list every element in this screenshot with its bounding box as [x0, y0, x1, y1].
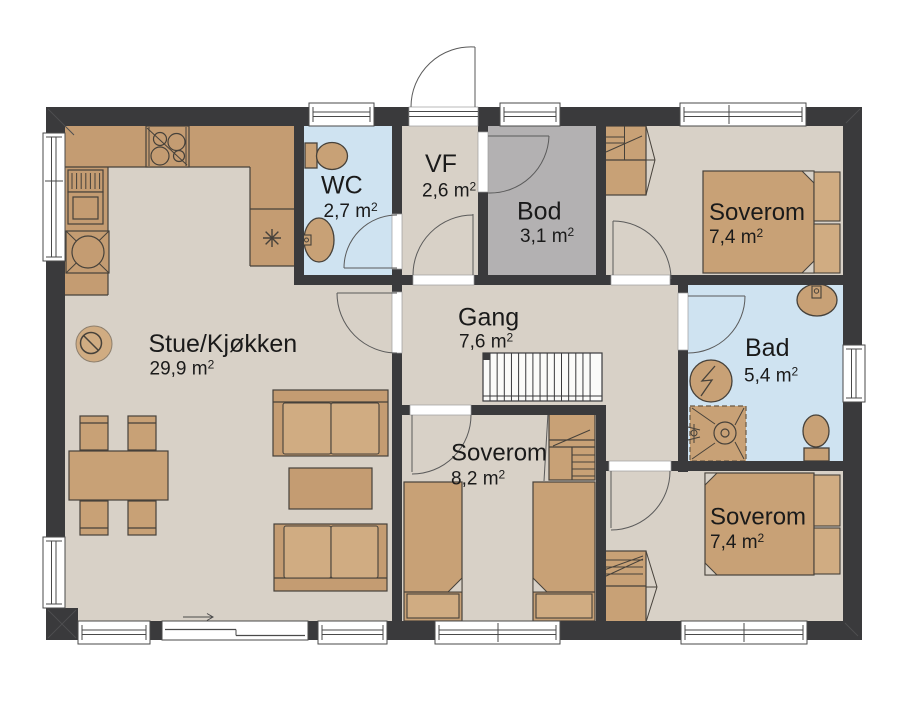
svg-text:Gang: Gang — [458, 304, 519, 332]
svg-text:WC: WC — [321, 172, 363, 200]
svg-text:7,4 m2: 7,4 m2 — [709, 226, 764, 248]
svg-text:Soverom: Soverom — [710, 504, 806, 531]
svg-text:Bad: Bad — [745, 334, 789, 362]
svg-text:2,6 m2: 2,6 m2 — [422, 180, 477, 202]
svg-text:VF: VF — [425, 150, 457, 178]
svg-text:2,7 m2: 2,7 m2 — [324, 200, 379, 222]
svg-text:29,9 m2: 29,9 m2 — [150, 358, 215, 380]
svg-text:Soverom: Soverom — [709, 199, 805, 226]
svg-text:5,4 m2: 5,4 m2 — [744, 365, 799, 387]
svg-text:Stue/Kjøkken: Stue/Kjøkken — [149, 330, 298, 358]
svg-text:Bod: Bod — [517, 198, 561, 226]
svg-text:7,4 m2: 7,4 m2 — [710, 531, 765, 553]
svg-text:Soverom: Soverom — [451, 440, 547, 467]
svg-text:8,2 m2: 8,2 m2 — [451, 468, 506, 490]
svg-text:7,6 m2: 7,6 m2 — [459, 331, 514, 353]
svg-text:3,1 m2: 3,1 m2 — [520, 225, 575, 247]
